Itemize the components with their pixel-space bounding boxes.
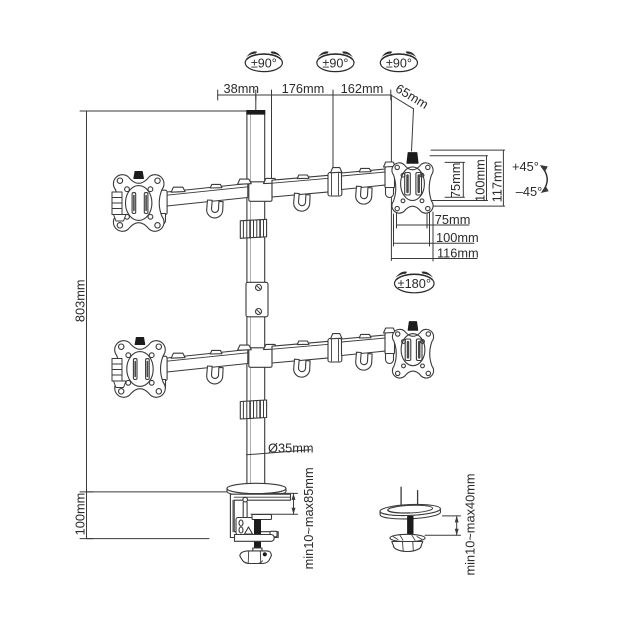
svg-text:75mm: 75mm: [435, 212, 471, 227]
svg-text:min10~max40mm: min10~max40mm: [463, 473, 478, 575]
svg-text:100mm: 100mm: [472, 159, 487, 202]
svg-text:803mm: 803mm: [72, 279, 87, 322]
svg-text:162mm: 162mm: [341, 81, 384, 96]
svg-text:±90°: ±90°: [386, 56, 412, 70]
svg-text:38mm: 38mm: [224, 81, 260, 96]
svg-text:176mm: 176mm: [282, 81, 325, 96]
svg-text:min10~max85mm: min10~max85mm: [301, 467, 316, 569]
svg-text:75mm: 75mm: [448, 163, 463, 199]
svg-text:±90°: ±90°: [322, 56, 348, 70]
svg-text:±180°: ±180°: [398, 276, 432, 291]
svg-text:100mm: 100mm: [436, 230, 479, 245]
svg-text:100mm: 100mm: [72, 493, 87, 536]
svg-text:117mm: 117mm: [489, 161, 504, 203]
svg-text:±90°: ±90°: [251, 56, 277, 70]
svg-text:–45°: –45°: [516, 184, 542, 199]
svg-text:116mm: 116mm: [437, 245, 479, 260]
svg-text:Ø35mm: Ø35mm: [268, 441, 314, 456]
svg-text:+45°: +45°: [512, 159, 539, 174]
